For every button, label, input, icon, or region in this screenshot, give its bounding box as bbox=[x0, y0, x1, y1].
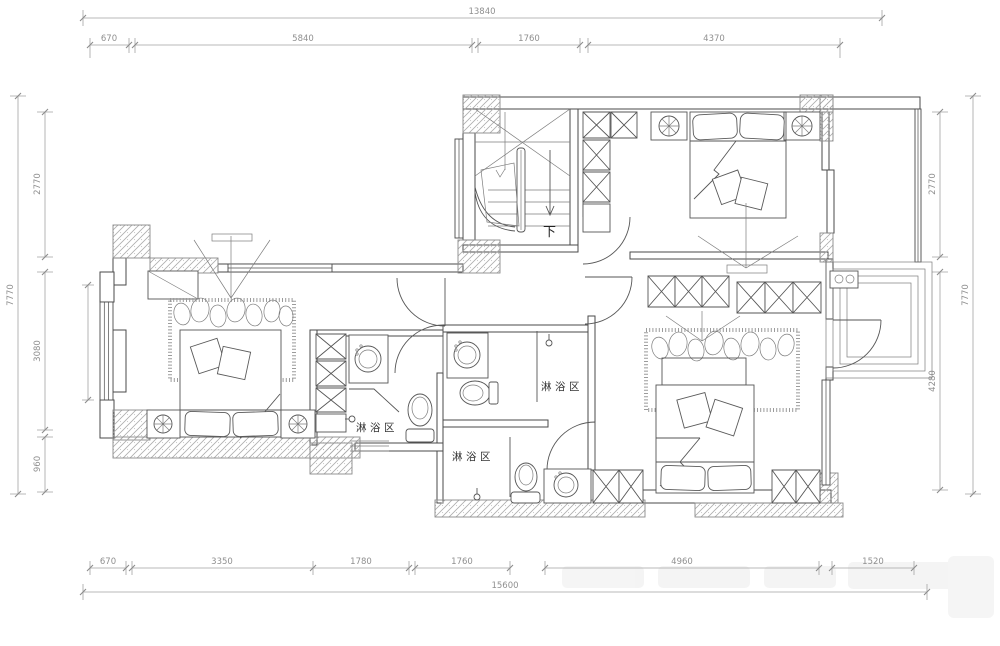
bathroom-1: 淋浴区 bbox=[316, 334, 434, 451]
toilet bbox=[511, 463, 540, 503]
dim-left-seg-1: 3080 bbox=[33, 340, 43, 362]
toilet bbox=[406, 394, 434, 442]
basin bbox=[447, 333, 488, 378]
shower-head bbox=[345, 416, 355, 422]
dim-bottom-seg-0: 670 bbox=[100, 557, 116, 567]
nightstand-lamp bbox=[651, 112, 687, 140]
door-corridor-bath bbox=[397, 278, 445, 326]
bed-top-right bbox=[690, 112, 786, 218]
ceiling-projection bbox=[666, 311, 740, 341]
bedroom-bottom-right bbox=[646, 311, 820, 503]
woven-headboard bbox=[662, 358, 746, 385]
dim-top-seg-3: 4370 bbox=[703, 34, 725, 44]
dim-top: 13840 670 5840 1760 4370 bbox=[80, 7, 885, 58]
bathroom-3: 淋浴区 bbox=[452, 437, 643, 503]
rug-cushions bbox=[649, 329, 796, 362]
dim-bottom-seg-2: 1780 bbox=[350, 557, 372, 567]
nightstand-lamp bbox=[281, 410, 315, 438]
window-left-bedroom bbox=[100, 302, 113, 400]
nightstand-lamp bbox=[784, 112, 820, 140]
shower-area-label-1: 淋浴区 bbox=[356, 421, 398, 434]
window-stair-west bbox=[455, 139, 463, 238]
bed-bottom-right bbox=[656, 385, 754, 493]
nightstand-lamp bbox=[147, 410, 180, 438]
dim-right-overall: 7770 bbox=[961, 284, 971, 306]
bathroom-2: 淋浴区 bbox=[447, 331, 583, 405]
dim-left-overall: 7770 bbox=[6, 284, 16, 306]
stair-landing bbox=[481, 163, 519, 226]
dim-top-seg-0: 670 bbox=[101, 34, 117, 44]
floor-plan-canvas: 13840 670 5840 1760 4370 670 3350 1780 1… bbox=[0, 0, 1000, 646]
dim-left: 7770 2770 3080 960 bbox=[6, 93, 94, 497]
basin bbox=[544, 469, 591, 503]
washer-fixture bbox=[830, 271, 858, 288]
basin bbox=[349, 335, 388, 383]
dim-bottom-seg-1: 3350 bbox=[211, 557, 233, 567]
cabinet bbox=[148, 271, 198, 299]
dim-top-seg-2: 1760 bbox=[518, 34, 540, 44]
window-balcony-right bbox=[915, 109, 921, 262]
stairs-down-label: 下 bbox=[543, 225, 556, 240]
shower-screen bbox=[349, 389, 399, 412]
watermark bbox=[562, 556, 994, 618]
shower-head bbox=[546, 334, 552, 346]
dim-bottom-seg-5: 1520 bbox=[862, 557, 884, 567]
floor-plan-drawing: 13840 670 5840 1760 4370 670 3350 1780 1… bbox=[0, 0, 1000, 646]
window-bedroom3-east bbox=[822, 380, 830, 485]
dim-top-overall: 13840 bbox=[468, 7, 495, 17]
dim-right: 7770 2770 4280 bbox=[928, 93, 981, 497]
dim-bottom-seg-4: 4960 bbox=[671, 557, 693, 567]
bed-left bbox=[180, 330, 281, 438]
toilet bbox=[460, 381, 498, 405]
dim-left-seg-2: 960 bbox=[33, 456, 43, 472]
window-left-wing-top bbox=[228, 264, 332, 272]
bedroom-top-right bbox=[583, 112, 820, 273]
dim-bottom-seg-3: 1760 bbox=[451, 557, 473, 567]
shower-area-label-3: 淋浴区 bbox=[452, 450, 494, 463]
dim-bottom-overall: 15600 bbox=[491, 581, 518, 591]
shower-area-label-2: 淋浴区 bbox=[541, 380, 583, 393]
shower-head bbox=[474, 488, 480, 500]
dim-right-seg-0: 2770 bbox=[928, 173, 938, 195]
dim-left-seg-0: 2770 bbox=[33, 173, 43, 195]
dim-top-seg-1: 5840 bbox=[292, 34, 314, 44]
dim-right-seg-1: 4280 bbox=[928, 370, 938, 392]
